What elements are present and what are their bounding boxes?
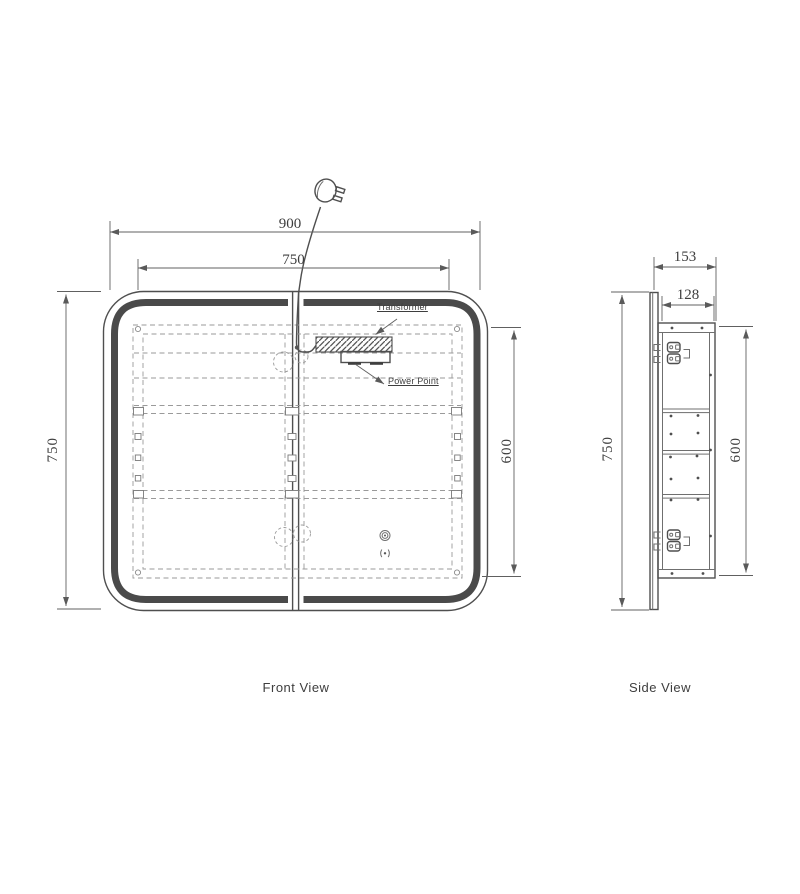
corner-hole-icons	[135, 326, 459, 575]
dim-side-cabinet-height: 600	[728, 437, 745, 463]
cabinet-outline	[104, 292, 488, 611]
power-plug-icon	[312, 176, 346, 207]
dim-inner-height: 600	[499, 438, 516, 464]
dim-overall-width: 900	[105, 216, 475, 233]
hinge-icon	[654, 530, 690, 551]
front-view-drawing	[104, 176, 488, 610]
dim-overall-height: 750	[45, 437, 62, 463]
interior-dashed-lines	[133, 325, 462, 578]
transformer-leader-arrow	[376, 319, 398, 335]
drawing-svg	[0, 0, 800, 894]
mirror-door-panel	[650, 293, 658, 610]
dim-overall-depth: 153	[654, 249, 716, 266]
power-point-label: Power Point	[388, 377, 439, 387]
touch-sensor-icon	[380, 531, 390, 541]
side-view-dimension-lines	[611, 257, 753, 610]
power-point-leader-arrow	[355, 364, 384, 384]
technical-drawing-page: 900 750 750 600 Transformer Power Point …	[0, 0, 800, 894]
demister-icon	[381, 550, 390, 558]
transformer-hatch	[316, 337, 392, 352]
front-view-label: Front View	[243, 681, 349, 695]
transformer-label: Transformer	[377, 303, 428, 313]
hinge-marks	[134, 408, 462, 499]
hinge-icon	[654, 343, 690, 364]
shelves	[663, 409, 710, 498]
dim-led-width: 750	[138, 252, 449, 269]
side-view-drawing	[650, 293, 715, 610]
cord-grommet	[295, 345, 299, 349]
side-view-label: Side View	[607, 681, 713, 695]
dim-side-overall-height: 750	[600, 436, 617, 462]
dim-cabinet-depth: 128	[662, 287, 714, 304]
led-band-left-door	[115, 303, 289, 600]
